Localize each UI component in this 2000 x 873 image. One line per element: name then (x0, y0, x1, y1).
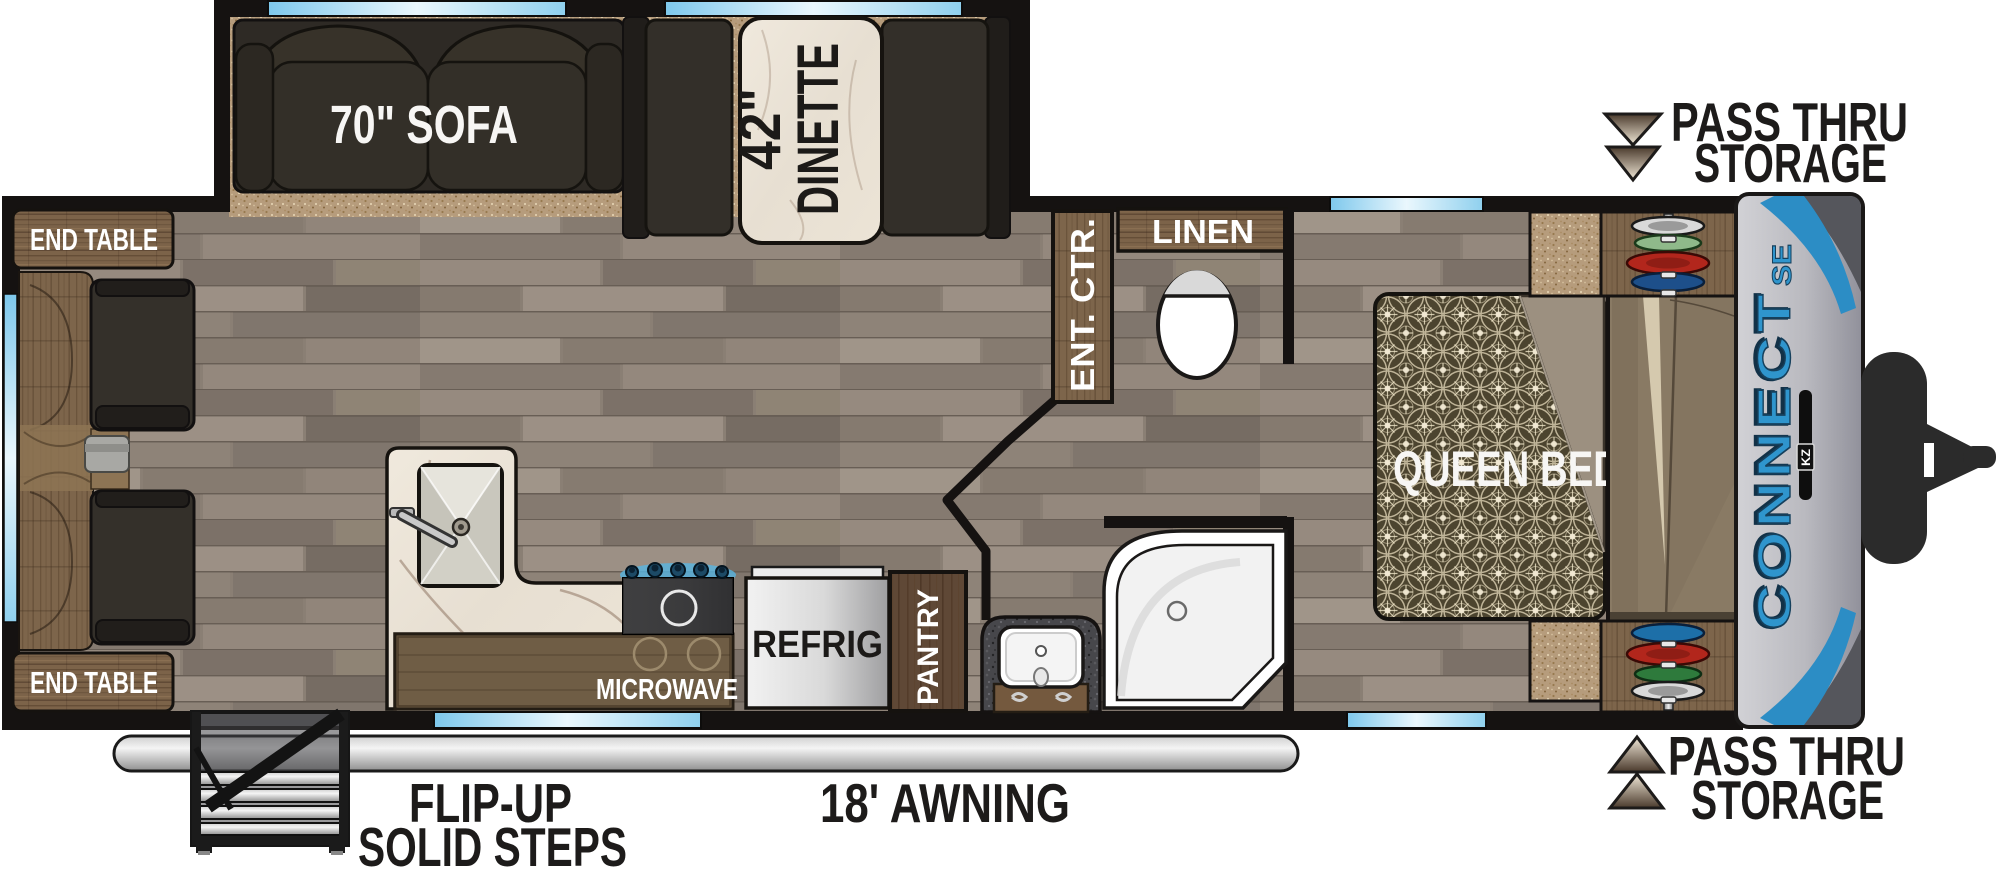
svg-text:PANTRY: PANTRY (912, 589, 945, 705)
svg-text:END TABLE: END TABLE (30, 665, 158, 700)
svg-text:70" SOFA: 70" SOFA (330, 95, 518, 155)
svg-text:KZ: KZ (1799, 449, 1813, 466)
svg-text:REFRIG: REFRIG (752, 624, 883, 666)
svg-text:ENT. CTR.: ENT. CTR. (1064, 218, 1101, 392)
svg-text:SOLID STEPS: SOLID STEPS (358, 816, 627, 873)
svg-text:END TABLE: END TABLE (30, 222, 158, 257)
svg-text:CONNECT: CONNECT (1748, 290, 1800, 630)
svg-text:18' AWNING: 18' AWNING (820, 772, 1070, 834)
svg-text:DINETTE: DINETTE (786, 43, 851, 215)
svg-text:LINEN: LINEN (1152, 213, 1254, 250)
svg-text:MICROWAVE: MICROWAVE (596, 674, 738, 706)
svg-text:QUEEN BED: QUEEN BED (1393, 441, 1621, 497)
svg-text:SE: SE (1767, 244, 1797, 286)
svg-text:STORAGE: STORAGE (1691, 769, 1884, 831)
svg-text:STORAGE: STORAGE (1694, 132, 1887, 194)
svg-text:42": 42" (728, 88, 793, 170)
